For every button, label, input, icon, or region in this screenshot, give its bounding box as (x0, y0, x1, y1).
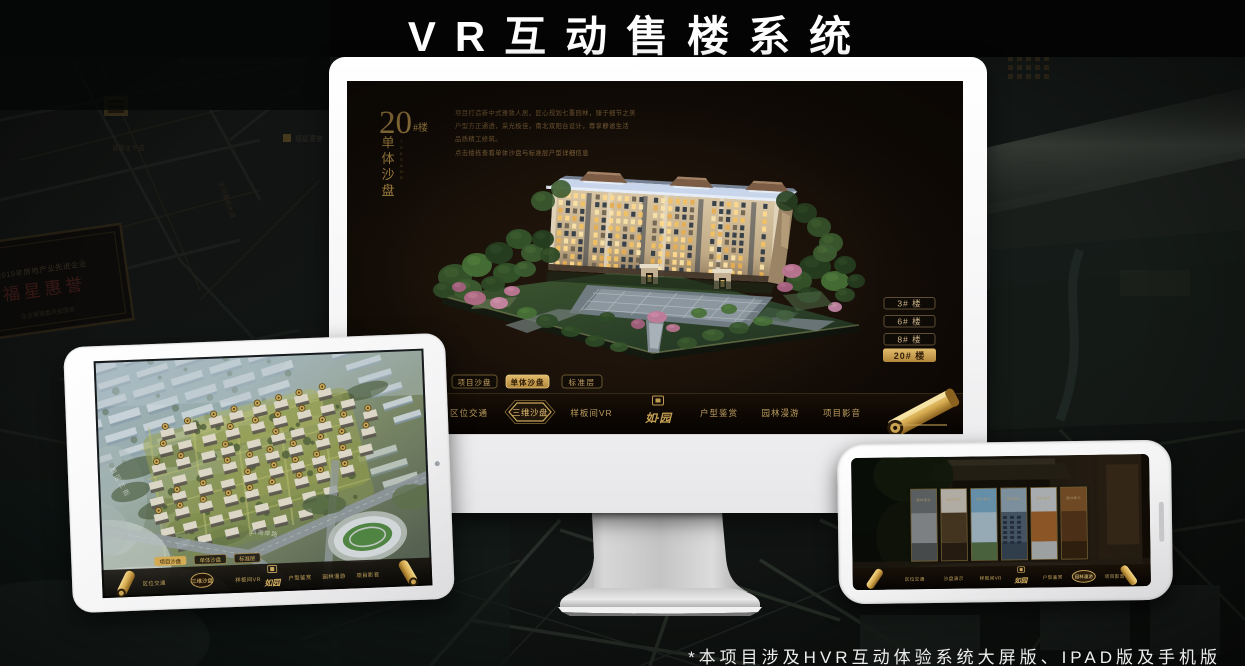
svg-text:3# 楼: 3# 楼 (897, 299, 921, 309)
svg-text:如园: 如园 (1014, 577, 1029, 585)
svg-text:6# 楼: 6# 楼 (897, 317, 921, 327)
svg-text:标准层: 标准层 (569, 377, 596, 387)
svg-text:如园: 如园 (264, 578, 282, 588)
svg-text:区位交通: 区位交通 (450, 408, 488, 418)
svg-text:园林漫游: 园林漫游 (761, 408, 799, 418)
svg-text:如·园: 如·园 (645, 412, 673, 425)
svg-text:20# 楼: 20# 楼 (894, 350, 926, 361)
svg-text:单体沙盘: 单体沙盘 (511, 377, 545, 387)
svg-text:8# 楼: 8# 楼 (897, 335, 921, 345)
svg-text:样板间VR: 样板间VR (570, 408, 612, 418)
svg-text:三维沙盘: 三维沙盘 (512, 408, 548, 418)
svg-text:项目影音: 项目影音 (823, 408, 861, 418)
svg-text:项目沙盘: 项目沙盘 (458, 377, 492, 387)
svg-text:户型鉴赏: 户型鉴赏 (700, 408, 738, 418)
